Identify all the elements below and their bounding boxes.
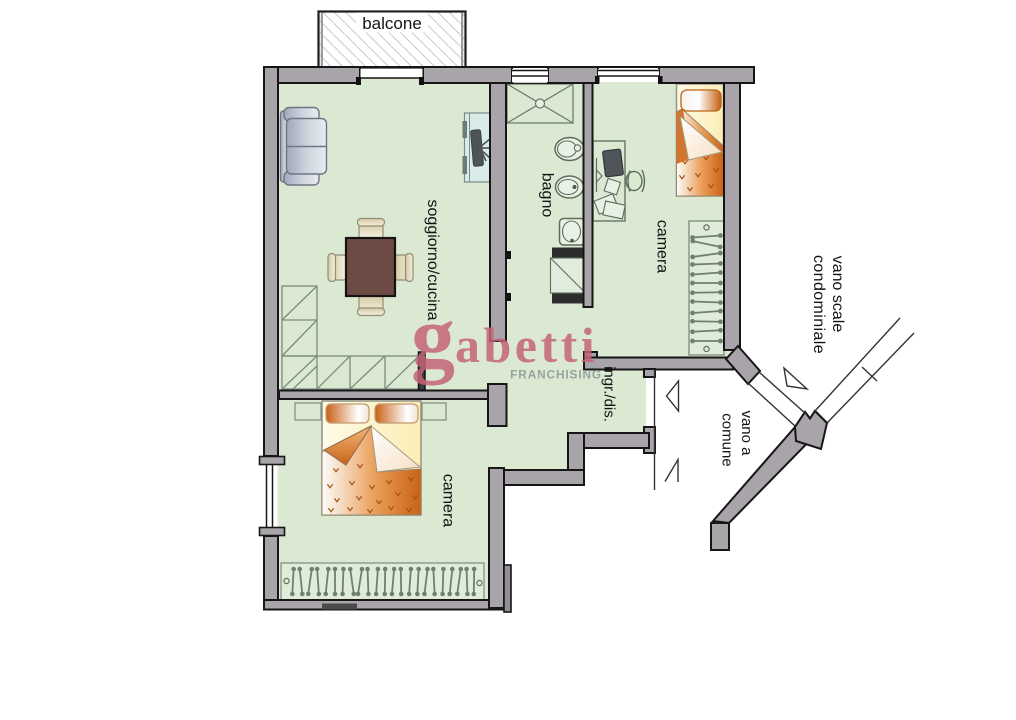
svg-text:vano a: vano a (738, 410, 755, 456)
svg-text:abetti: abetti (455, 317, 598, 373)
svg-text:vano scale: vano scale (829, 256, 846, 333)
svg-text:camera: camera (439, 474, 456, 527)
svg-text:balcone: balcone (362, 14, 422, 33)
svg-text:FRANCHISING: FRANCHISING (510, 368, 602, 382)
svg-text:soggiorno/cucina: soggiorno/cucina (424, 200, 441, 321)
svg-text:camera: camera (653, 220, 670, 273)
svg-text:ingr./dis.: ingr./dis. (601, 366, 618, 422)
svg-text:condominiale: condominiale (810, 255, 827, 354)
svg-text:comune: comune (719, 413, 736, 466)
svg-text:bagno: bagno (538, 173, 555, 218)
